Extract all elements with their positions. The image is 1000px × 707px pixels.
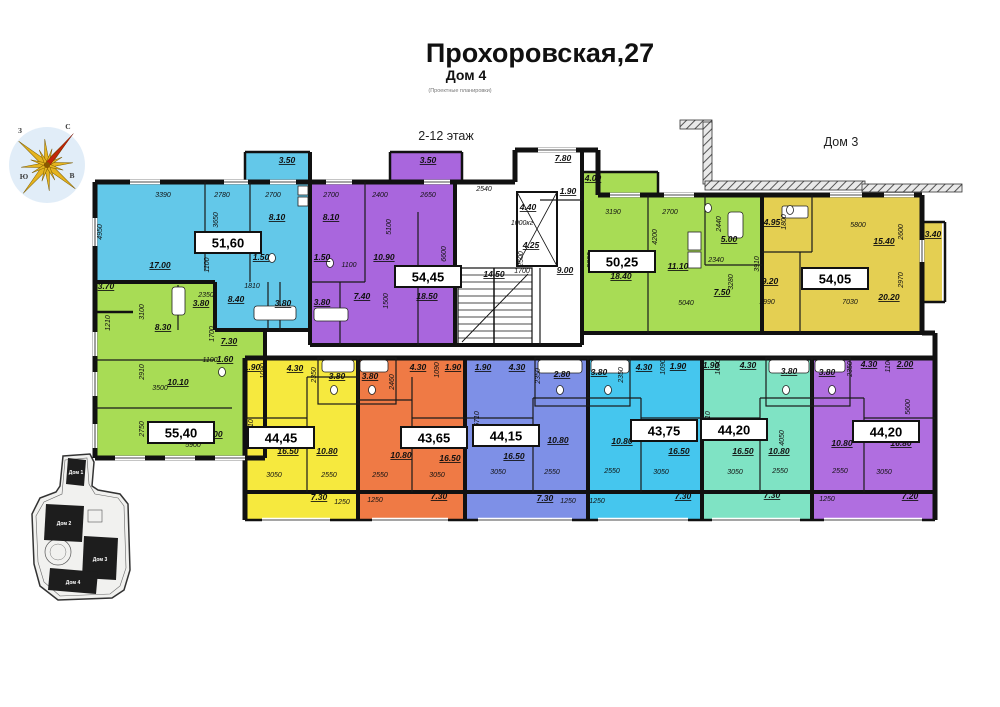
dimension-label: 2750 (139, 421, 146, 438)
dimension-label: 2350 (311, 367, 318, 384)
dimension-label: 1990 (759, 299, 775, 306)
room-area-label: 10.90 (373, 252, 395, 262)
compass-south-label: Ю (20, 172, 29, 181)
dimension-label: 1100 (341, 262, 356, 269)
dimension-label: 3050 (653, 469, 669, 476)
room-area-label: 3.40 (925, 229, 942, 239)
room-area-label: 10.10 (167, 377, 189, 387)
dimension-label: 1100 (204, 257, 211, 272)
room-area-label: 3.50 (279, 155, 296, 165)
dimension-label: 2910 (139, 364, 146, 381)
dimension-label: 1090 (260, 363, 267, 379)
dimension-label: 2350 (847, 361, 854, 378)
apartment-area-label: 44,20 (870, 425, 903, 440)
dimension-label: 1700 (514, 268, 530, 275)
dimension-label: 1800 (781, 214, 788, 230)
room-area-label: 2.80 (553, 369, 571, 379)
dimension-label: 5600 (905, 399, 912, 415)
room-area-label: 7.30 (311, 492, 328, 502)
apartment-area-label: 44,15 (490, 429, 523, 444)
dimension-label: 2650 (419, 192, 436, 199)
room-area-label: 3.80 (329, 371, 346, 381)
dimension-label: 1090 (660, 359, 667, 375)
dimension-label: 2400 (371, 192, 388, 199)
room-area-label: 7.30 (675, 491, 692, 501)
dimension-label: 2700 (322, 192, 339, 199)
room-area-label: 7.30 (431, 491, 448, 501)
room-area-label: 9.20 (762, 276, 779, 286)
room-area-label: 3.50 (420, 155, 437, 165)
room-area-label: 4.25 (522, 240, 540, 250)
dimension-label: 3050 (727, 469, 743, 476)
room-area-label: 8.30 (155, 322, 172, 332)
apartment-area-label: 44,20 (718, 423, 751, 438)
dimension-label: 3910 (754, 256, 761, 272)
room-area-label: 7.80 (555, 153, 572, 163)
room-area-label: 10.80 (390, 450, 412, 460)
apartment-area-label: 54,45 (412, 270, 445, 285)
room-area-label: 7.30 (537, 493, 554, 503)
room-area-label: 10.80 (316, 446, 338, 456)
apartment-area-label: 43,75 (648, 424, 681, 439)
room-area-label: 4.00 (584, 173, 602, 183)
site-building-3-label: Дом 3 (93, 557, 108, 563)
dimension-label: 2970 (898, 272, 905, 289)
dimension-label: 2600 (898, 224, 905, 241)
dimension-label: 4050 (779, 430, 786, 446)
dimension-label: 1210 (105, 315, 112, 331)
room-area-label: 2.00 (896, 359, 914, 369)
room-area-label: 10.80 (547, 435, 569, 445)
room-area-label: 8.40 (228, 294, 245, 304)
dimension-label: 3390 (155, 192, 171, 199)
dimension-label: 1000кг (511, 220, 534, 227)
page-title: Прохоровская,27 (426, 38, 654, 68)
room-area-label: 4.30 (739, 360, 757, 370)
dimension-label: 3650 (213, 212, 220, 228)
room-area-label: 18.50 (416, 291, 438, 301)
room-area-label: 1.90 (445, 362, 462, 372)
dimension-label: 2550 (603, 468, 620, 475)
compass-north-label: С (65, 122, 70, 131)
room-area-label: 3.80 (193, 298, 210, 308)
dimension-label: 3190 (605, 209, 621, 216)
apartment-area-label: 54,05 (819, 272, 852, 287)
dimension-label: 5040 (678, 300, 694, 307)
room-area-label: 1.90 (244, 362, 261, 372)
dimension-label: 2700 (264, 192, 281, 199)
room-area-label: 9.00 (557, 265, 574, 275)
dimension-label: 1700 (209, 326, 216, 342)
dimension-label: 1090 (715, 359, 722, 375)
room-area-label: 11.10 (668, 261, 689, 271)
dimension-label: 2540 (475, 186, 492, 193)
dimension-label: 3500 (152, 385, 168, 392)
dimension-label: 2350 (618, 367, 625, 384)
dimension-label: 1250 (819, 496, 835, 503)
dimension-label: 2550 (771, 468, 788, 475)
dimension-label: 2440 (716, 216, 723, 233)
existing-building-walls (680, 120, 962, 192)
room-area-label: 3.80 (314, 297, 331, 307)
site-building-2-label: Дом 2 (57, 521, 72, 527)
room-area-label: 4.40 (519, 202, 537, 212)
dimension-label: 2780 (213, 192, 230, 199)
dimension-label: 2350 (535, 368, 542, 385)
room-area-label: 3.80 (275, 298, 292, 308)
floor-plan-drawing: Прохоровская,27 Дом 4 (Проектные планиро… (0, 0, 1000, 707)
building-subtitle: Дом 4 (446, 67, 487, 83)
room-area-label: 7.50 (714, 287, 731, 297)
dimension-label: 2550 (320, 472, 337, 479)
room-area-label: 20.20 (877, 292, 900, 302)
room-area-label: 4.30 (286, 363, 304, 373)
room-area-label: 3.80 (591, 367, 608, 377)
dimension-label: 2460 (389, 374, 396, 391)
compass-icon: С В Ю З (0, 110, 102, 217)
room-area-label: 4.95 (763, 217, 781, 227)
dimension-label: 2550 (371, 472, 388, 479)
room-area-label: 3.80 (781, 366, 798, 376)
room-area-label: 17.00 (149, 260, 171, 270)
dimension-label: 1250 (334, 499, 350, 506)
room-area-label: 7.30 (764, 490, 781, 500)
dimension-label: 1090 (434, 362, 441, 378)
dimension-label: 1100 (885, 357, 892, 372)
room-area-label: 4.30 (860, 359, 878, 369)
dimension-label: 2340 (707, 257, 724, 264)
dimension-label: 2550 (831, 468, 848, 475)
dimension-label: 5800 (850, 222, 866, 229)
dimension-label: 4950 (97, 224, 104, 240)
room-area-label: 8.10 (323, 212, 340, 222)
apartment-area-label: 44,45 (265, 431, 298, 446)
room-area-label: 16.50 (668, 446, 690, 456)
room-area-label: 3.70 (98, 281, 115, 291)
room-area-label: 3.80 (819, 367, 836, 377)
dimension-label: 3050 (876, 469, 892, 476)
floor-range-label: 2-12 этаж (418, 129, 474, 143)
room-area-label: 10.80 (768, 446, 790, 456)
compass-east-label: В (69, 171, 74, 180)
apartment-area-label: 50,25 (606, 255, 639, 270)
room-area-label: 15.40 (873, 236, 895, 246)
room-area-label: 14.50 (483, 269, 505, 279)
apartment-area-label: 43,65 (418, 431, 451, 446)
room-area-label: 16.50 (439, 453, 461, 463)
dimension-label: 1500 (383, 293, 390, 309)
dimension-label: 3050 (266, 472, 282, 479)
room-area-label: 8.10 (269, 212, 286, 222)
site-building-4-label: Дом 4 (66, 580, 81, 586)
site-plan: Дом 1 Дом 2 Дом 3 Дом 4 (32, 454, 130, 600)
room-area-label: 10.80 (831, 438, 853, 448)
dimension-label: 1250 (367, 497, 383, 504)
room-area-label: 1.90 (670, 361, 687, 371)
adjacent-building-label: Дом 3 (824, 135, 859, 149)
apartment-area-label: 55,40 (165, 426, 198, 441)
dimension-label: 7030 (842, 299, 858, 306)
staircase (458, 268, 532, 345)
dimension-label: 5100 (386, 219, 393, 235)
apartment-area-label: 51,60 (212, 236, 245, 251)
plan-note: (Проектные планировки) (428, 88, 491, 94)
dimension-label: 1810 (244, 283, 260, 290)
dimension-label: 4200 (652, 229, 659, 245)
room-area-label: 3.80 (362, 371, 379, 381)
dimension-label: 3100 (139, 304, 146, 320)
room-area-label: 1.60 (217, 354, 234, 364)
room-area-label: 1.90 (475, 362, 492, 372)
room-area-label: 1.50 (314, 252, 331, 262)
room-area-label: 4.30 (635, 362, 653, 372)
dimension-label: 1250 (589, 498, 605, 505)
dimension-label: 3050 (429, 472, 445, 479)
room-area-label: 4.30 (409, 362, 427, 372)
room-area-label: 7.30 (221, 336, 238, 346)
dimension-label: 2500 (518, 251, 525, 268)
dimension-label: 1250 (560, 498, 576, 505)
room-area-label: 4.30 (508, 362, 526, 372)
room-area-label: 7.20 (902, 491, 919, 501)
room-area-label: 5.00 (721, 234, 738, 244)
dimension-label: 6600 (441, 246, 448, 262)
site-building-1-label: Дом 1 (69, 470, 84, 476)
compass-west-label: З (18, 126, 22, 135)
dimension-label: 2550 (543, 469, 560, 476)
room-area-label: 7.40 (354, 291, 371, 301)
dimension-label: 2700 (661, 209, 678, 216)
room-area-label: 16.50 (732, 446, 754, 456)
room-area-label: 16.50 (503, 451, 525, 461)
dimension-label: 3050 (490, 469, 506, 476)
dimension-label: 1100 (202, 357, 217, 364)
room-area-label: 10.80 (611, 436, 633, 446)
room-area-label: 1.90 (560, 186, 577, 196)
